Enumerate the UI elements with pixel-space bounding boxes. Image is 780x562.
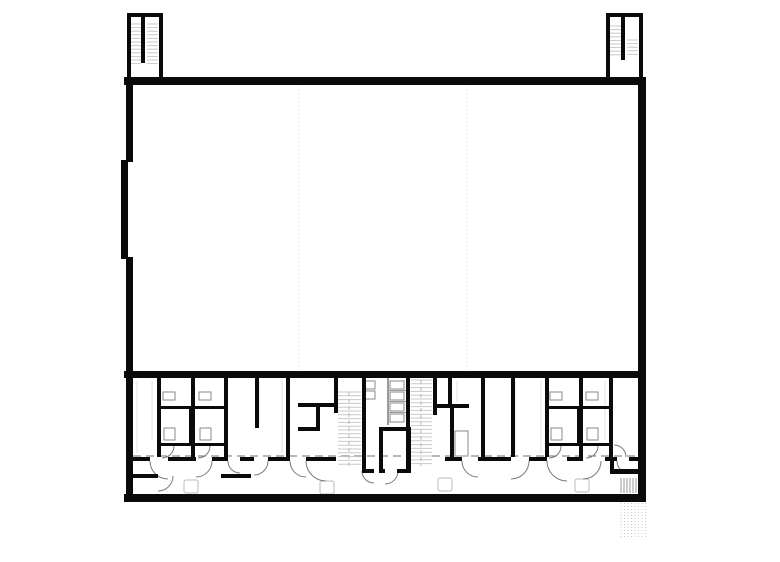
door-arc <box>306 461 326 481</box>
wall-segment <box>124 494 646 502</box>
wall-segment <box>255 378 259 428</box>
corridor-wall-segment <box>445 457 462 461</box>
wall-segment <box>638 85 646 502</box>
wall-segment <box>221 474 251 478</box>
wall-segment <box>606 13 610 79</box>
door-arc <box>228 461 240 473</box>
floor-fixture <box>575 479 589 492</box>
corridor-wall-segment <box>529 457 547 461</box>
door-arc <box>254 461 268 475</box>
wall-segment <box>286 378 290 457</box>
wall-segment <box>397 469 411 473</box>
wall-segment <box>124 77 646 85</box>
floor-plan-page <box>0 0 780 562</box>
wall-segment <box>121 160 128 259</box>
floor-plan-canvas <box>0 0 780 562</box>
door-arc <box>547 461 567 481</box>
wall-segment <box>621 13 625 60</box>
fixture <box>586 392 598 400</box>
fixture <box>550 392 562 400</box>
wall-segment <box>407 427 411 473</box>
thin-partition <box>388 401 406 402</box>
wall-segment <box>433 378 437 415</box>
wall-segment <box>127 13 131 81</box>
wall-segment <box>126 85 133 162</box>
corridor-wall-segment <box>268 457 290 461</box>
fixture <box>390 381 404 389</box>
wall-segment <box>379 427 383 473</box>
wall-segment <box>298 427 320 431</box>
door-arc <box>614 445 626 457</box>
corridor-wall-segment <box>240 457 254 461</box>
fixture <box>551 428 562 440</box>
wall-segment <box>362 378 366 473</box>
fixture <box>164 428 175 440</box>
thin-partition <box>388 390 406 391</box>
door-arc <box>290 461 306 477</box>
corridor-wall-segment <box>478 457 511 461</box>
corridor-wall-segment <box>629 457 638 461</box>
fixture <box>455 431 468 456</box>
door-arc <box>158 476 173 491</box>
wall-segment <box>379 427 411 431</box>
thin-partition <box>387 378 389 425</box>
wall-segment <box>159 13 163 81</box>
thin-partition <box>388 412 406 413</box>
floor-fixture <box>438 478 452 491</box>
corridor-wall-segment <box>212 457 228 461</box>
wall-segment <box>481 378 485 457</box>
fixture <box>390 414 404 422</box>
door-arc <box>385 471 398 484</box>
wall-segment <box>610 469 638 474</box>
door-arc <box>586 446 598 458</box>
wall-segment <box>124 371 646 378</box>
fixture <box>199 392 211 400</box>
wall-segment <box>334 378 338 413</box>
fixture <box>390 403 404 411</box>
door-arc <box>583 461 601 479</box>
fixture <box>587 428 598 440</box>
floor-fixture <box>184 480 198 493</box>
wall-segment <box>189 406 193 446</box>
corridor-wall-segment <box>306 457 336 461</box>
wall-segment <box>141 13 145 63</box>
wall-segment <box>610 459 614 471</box>
wall-segment <box>448 378 452 406</box>
wall-segment <box>433 404 469 408</box>
wall-segment <box>128 474 158 478</box>
wall-segment <box>379 469 385 473</box>
wall-segment <box>316 407 320 429</box>
wall-segment <box>577 406 581 446</box>
fixture <box>390 392 404 400</box>
wall-segment <box>362 469 374 473</box>
corridor-wall-segment <box>168 457 196 461</box>
door-arc <box>511 461 529 479</box>
fixture <box>163 392 175 400</box>
corridor-wall-segment <box>567 457 583 461</box>
wall-segment <box>298 403 338 407</box>
door-arc <box>196 461 212 477</box>
wall-segment <box>639 13 643 79</box>
wall-segment <box>511 378 515 457</box>
corridor-wall-segment <box>133 457 150 461</box>
floor-fixture <box>320 481 334 494</box>
wall-segment <box>450 408 454 457</box>
fixture <box>200 428 211 440</box>
wall-segment <box>126 257 133 502</box>
door-arc <box>462 461 478 477</box>
